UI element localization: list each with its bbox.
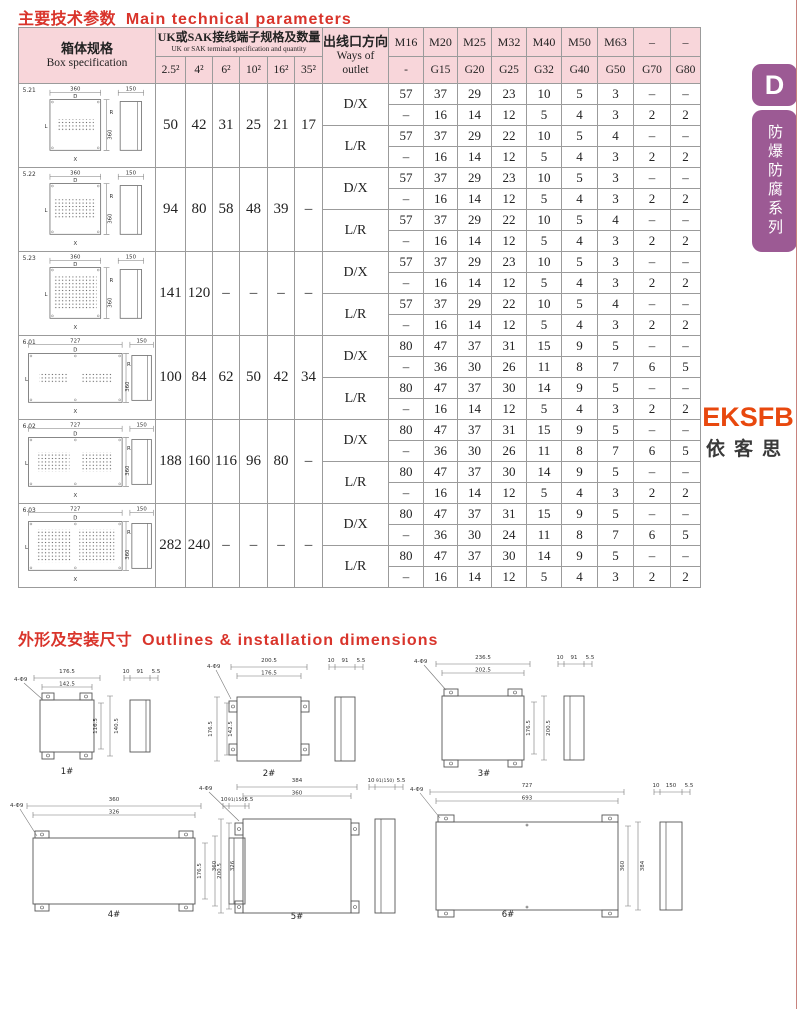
gland-col-header: G20 bbox=[458, 57, 492, 84]
outline-drawing-2: 200.5 176.5 4-Φ9 176.5 142.5 10 91 5.5 2… bbox=[205, 655, 370, 780]
terminal-count-cell: – bbox=[268, 252, 295, 336]
value-cell: 2 bbox=[634, 315, 671, 336]
dim-label: 200.5 bbox=[546, 720, 552, 736]
value-cell: 14 bbox=[458, 189, 492, 210]
value-cell: 15 bbox=[527, 336, 562, 357]
value-cell: 16 bbox=[424, 105, 458, 126]
dim-label: 10 bbox=[653, 783, 660, 789]
value-cell: 37 bbox=[424, 126, 458, 147]
value-cell: 7 bbox=[598, 525, 634, 546]
value-cell: 37 bbox=[424, 294, 458, 315]
svg-text:X: X bbox=[73, 325, 77, 330]
value-cell: 9 bbox=[562, 336, 598, 357]
value-cell: 12 bbox=[492, 315, 527, 336]
value-cell: 4 bbox=[562, 105, 598, 126]
value-cell: 5 bbox=[598, 420, 634, 441]
value-cell: 29 bbox=[458, 294, 492, 315]
value-cell: 12 bbox=[492, 105, 527, 126]
dim-label: 142.5 bbox=[59, 682, 75, 688]
value-cell: 80 bbox=[389, 420, 424, 441]
value-cell: 22 bbox=[492, 126, 527, 147]
svg-text:150: 150 bbox=[125, 170, 136, 176]
value-cell: 57 bbox=[389, 84, 424, 105]
value-cell: 9 bbox=[562, 462, 598, 483]
terminal-count-cell: 25 bbox=[240, 84, 268, 168]
value-cell: 2 bbox=[634, 567, 671, 588]
svg-text:5.22: 5.22 bbox=[22, 172, 35, 178]
value-cell: 37 bbox=[458, 462, 492, 483]
value-cell: 9 bbox=[562, 378, 598, 399]
value-cell: 4 bbox=[598, 126, 634, 147]
outlines-title: 外形及安装尺寸Outlines & installation dimension… bbox=[18, 626, 438, 650]
value-cell: 37 bbox=[458, 546, 492, 567]
value-cell: – bbox=[671, 252, 701, 273]
terminal-count-cell: 188 bbox=[156, 420, 186, 504]
value-cell: 5 bbox=[671, 525, 701, 546]
value-cell: 57 bbox=[389, 168, 424, 189]
value-cell: 31 bbox=[492, 336, 527, 357]
value-cell: 29 bbox=[458, 210, 492, 231]
value-cell: 30 bbox=[492, 378, 527, 399]
svg-text:150: 150 bbox=[125, 254, 136, 260]
value-cell: – bbox=[389, 567, 424, 588]
dim-label: 176.5 bbox=[261, 671, 277, 677]
value-cell: 16 bbox=[424, 483, 458, 504]
dim-label: 384 bbox=[292, 778, 303, 784]
value-cell: 5 bbox=[598, 546, 634, 567]
value-cell: 22 bbox=[492, 294, 527, 315]
value-cell: 4 bbox=[562, 147, 598, 168]
value-cell: 3 bbox=[598, 189, 634, 210]
svg-text:150: 150 bbox=[125, 86, 136, 92]
table-row: 5.21360DLR360X150504231252117D/X57372923… bbox=[19, 84, 701, 105]
box-drawing: 6.02727DLR360X150 bbox=[20, 420, 155, 498]
outlet-way-cell: D/X bbox=[323, 336, 389, 378]
value-cell: 29 bbox=[458, 126, 492, 147]
value-cell: 2 bbox=[634, 147, 671, 168]
table-row: 6.03727DLR360X150282240––––D/X8047373115… bbox=[19, 504, 701, 525]
svg-text:360: 360 bbox=[107, 129, 113, 140]
terminal-count-cell: 42 bbox=[268, 336, 295, 420]
value-cell: – bbox=[389, 105, 424, 126]
value-cell: 29 bbox=[458, 84, 492, 105]
value-cell: – bbox=[634, 210, 671, 231]
value-cell: 37 bbox=[458, 336, 492, 357]
value-cell: 37 bbox=[424, 210, 458, 231]
svg-text:360: 360 bbox=[70, 170, 81, 176]
holes-label: 4-Φ9 bbox=[199, 786, 213, 792]
value-cell: 2 bbox=[671, 567, 701, 588]
value-cell: 57 bbox=[389, 210, 424, 231]
value-cell: 9 bbox=[562, 504, 598, 525]
terminal-count-cell: – bbox=[240, 504, 268, 588]
value-cell: 4 bbox=[598, 294, 634, 315]
dim-label: 140.5 bbox=[114, 718, 120, 734]
value-cell: 3 bbox=[598, 399, 634, 420]
terminal-count-cell: 21 bbox=[268, 84, 295, 168]
terminal-count-cell: 48 bbox=[240, 168, 268, 252]
terminal-size-header: 16² bbox=[268, 57, 295, 84]
terminal-count-cell: 141 bbox=[156, 252, 186, 336]
terminal-count-cell: 39 bbox=[268, 168, 295, 252]
value-cell: – bbox=[634, 84, 671, 105]
dim-label: 91(150) bbox=[376, 778, 394, 784]
brand-logo: EKSFB 依客思 bbox=[698, 404, 798, 461]
value-cell: 5 bbox=[562, 252, 598, 273]
value-cell: 3 bbox=[598, 231, 634, 252]
gland-col-header: G80 bbox=[671, 57, 701, 84]
value-cell: 2 bbox=[671, 273, 701, 294]
outlet-way-cell: L/R bbox=[323, 126, 389, 168]
value-cell: 5 bbox=[527, 147, 562, 168]
value-cell: – bbox=[634, 168, 671, 189]
svg-text:X: X bbox=[73, 157, 77, 162]
value-cell: 3 bbox=[598, 84, 634, 105]
svg-text:360: 360 bbox=[70, 254, 81, 260]
value-cell: 24 bbox=[492, 525, 527, 546]
box-drawing: 5.23360DLR360X150 bbox=[20, 252, 155, 330]
value-cell: 14 bbox=[527, 378, 562, 399]
drawing-label: 3# bbox=[478, 769, 491, 779]
terminal-count-cell: 84 bbox=[186, 336, 213, 420]
sidebar-tab-letter: D bbox=[765, 70, 785, 101]
value-cell: 4 bbox=[562, 315, 598, 336]
value-cell: – bbox=[671, 294, 701, 315]
value-cell: 9 bbox=[562, 420, 598, 441]
value-cell: 47 bbox=[424, 336, 458, 357]
value-cell: 12 bbox=[492, 147, 527, 168]
value-cell: 37 bbox=[424, 252, 458, 273]
value-cell: 7 bbox=[598, 441, 634, 462]
holes-label: 4-Φ9 bbox=[207, 664, 221, 670]
box-drawing: 6.03727DLR360X150 bbox=[20, 504, 155, 582]
terminal-spec-en: UK or SAK terminal specification and qua… bbox=[160, 46, 318, 54]
svg-text:L: L bbox=[44, 208, 47, 214]
terminal-count-cell: 80 bbox=[268, 420, 295, 504]
value-cell: – bbox=[671, 84, 701, 105]
value-cell: 30 bbox=[492, 546, 527, 567]
dim-label: 326 bbox=[230, 860, 236, 871]
svg-text:727: 727 bbox=[70, 506, 80, 512]
dim-label: 10 bbox=[328, 658, 335, 664]
value-cell: – bbox=[634, 294, 671, 315]
value-cell: – bbox=[389, 441, 424, 462]
box-figure-cell: 5.21360DLR360X150 bbox=[19, 84, 156, 168]
terminal-count-cell: 50 bbox=[156, 84, 186, 168]
svg-text:5.23: 5.23 bbox=[22, 256, 35, 262]
value-cell: 14 bbox=[458, 273, 492, 294]
gland-col-header: G70 bbox=[634, 57, 671, 84]
value-cell: – bbox=[671, 210, 701, 231]
terminal-count-cell: – bbox=[268, 504, 295, 588]
value-cell: 15 bbox=[527, 504, 562, 525]
value-cell: 23 bbox=[492, 84, 527, 105]
terminal-size-header: 35² bbox=[295, 57, 323, 84]
value-cell: 14 bbox=[458, 567, 492, 588]
svg-text:D: D bbox=[73, 516, 77, 522]
value-cell: 12 bbox=[492, 483, 527, 504]
svg-text:R: R bbox=[127, 446, 131, 452]
holes-label: 4-Φ9 bbox=[14, 677, 28, 683]
svg-text:L: L bbox=[25, 377, 28, 383]
value-cell: 3 bbox=[598, 273, 634, 294]
terminal-count-cell: 50 bbox=[240, 336, 268, 420]
value-cell: – bbox=[671, 462, 701, 483]
value-cell: 12 bbox=[492, 567, 527, 588]
terminal-size-header: 2.5² bbox=[156, 57, 186, 84]
sidebar-tab-d: D bbox=[752, 64, 797, 106]
drawing-label: 6# bbox=[502, 910, 515, 920]
terminal-count-cell: 282 bbox=[156, 504, 186, 588]
terminal-size-header: 6² bbox=[213, 57, 240, 84]
terminal-count-cell: 42 bbox=[186, 84, 213, 168]
terminal-count-cell: – bbox=[295, 504, 323, 588]
svg-text:5.21: 5.21 bbox=[22, 88, 35, 94]
value-cell: 5 bbox=[527, 231, 562, 252]
value-cell: 16 bbox=[424, 147, 458, 168]
svg-text:360: 360 bbox=[124, 381, 130, 392]
box-drawing: 6.01727DLR360X150 bbox=[20, 336, 155, 414]
value-cell: 37 bbox=[458, 504, 492, 525]
box-spec-en: Box specification bbox=[19, 57, 155, 70]
dim-label: 10 bbox=[368, 778, 375, 784]
box-spec-header: 箱体规格 Box specification bbox=[19, 28, 156, 84]
value-cell: 5 bbox=[671, 441, 701, 462]
holes-label: 4-Φ9 bbox=[414, 659, 428, 665]
gland-col-header: G32 bbox=[527, 57, 562, 84]
terminal-count-cell: 120 bbox=[186, 252, 213, 336]
value-cell: 11 bbox=[527, 441, 562, 462]
svg-text:X: X bbox=[73, 577, 77, 582]
value-cell: 5 bbox=[527, 315, 562, 336]
svg-text:R: R bbox=[109, 110, 113, 116]
value-cell: 2 bbox=[671, 147, 701, 168]
holes-label: 4-Φ9 bbox=[10, 803, 24, 809]
outlines-title-en: Outlines & installation dimensions bbox=[142, 632, 438, 649]
outlet-way-cell: D/X bbox=[323, 84, 389, 126]
catalog-page: 主要技术参数Main technical parameters 箱体规格 Box… bbox=[0, 0, 800, 1009]
terminal-size-header: 4² bbox=[186, 57, 213, 84]
terminal-count-cell: 240 bbox=[186, 504, 213, 588]
dim-label: 5.5 bbox=[357, 658, 366, 664]
dim-label: 236.5 bbox=[475, 655, 491, 661]
thread-col-header: – bbox=[671, 28, 701, 57]
value-cell: 5 bbox=[598, 378, 634, 399]
svg-text:360: 360 bbox=[107, 297, 113, 308]
outlines-title-zh: 外形及安装尺寸 bbox=[18, 632, 132, 649]
value-cell: 4 bbox=[562, 231, 598, 252]
table-row: 5.22360DLR360X1509480584839–D/X573729231… bbox=[19, 168, 701, 189]
dim-label: 5.5 bbox=[685, 783, 694, 789]
value-cell: 36 bbox=[424, 525, 458, 546]
terminal-count-cell: – bbox=[295, 420, 323, 504]
outlet-way-cell: D/X bbox=[323, 504, 389, 546]
svg-text:R: R bbox=[127, 530, 131, 536]
value-cell: 14 bbox=[527, 546, 562, 567]
value-cell: 36 bbox=[424, 357, 458, 378]
gland-col-header: - bbox=[389, 57, 424, 84]
main-parameters-title-en: Main technical parameters bbox=[126, 11, 352, 28]
terminal-count-cell: – bbox=[295, 252, 323, 336]
svg-text:150: 150 bbox=[136, 506, 147, 512]
dim-label: 91 bbox=[342, 658, 349, 664]
value-cell: 16 bbox=[424, 273, 458, 294]
svg-text:727: 727 bbox=[70, 422, 80, 428]
value-cell: 5 bbox=[562, 210, 598, 231]
value-cell: 29 bbox=[458, 252, 492, 273]
value-cell: 10 bbox=[527, 294, 562, 315]
thread-col-header: M63 bbox=[598, 28, 634, 57]
value-cell: – bbox=[389, 189, 424, 210]
value-cell: 3 bbox=[598, 105, 634, 126]
value-cell: 23 bbox=[492, 168, 527, 189]
value-cell: 57 bbox=[389, 252, 424, 273]
svg-text:X: X bbox=[73, 409, 77, 414]
value-cell: 2 bbox=[634, 189, 671, 210]
terminal-count-cell: – bbox=[295, 168, 323, 252]
value-cell: – bbox=[634, 252, 671, 273]
value-cell: 29 bbox=[458, 168, 492, 189]
outlet-way-cell: L/R bbox=[323, 546, 389, 588]
value-cell: 5 bbox=[562, 126, 598, 147]
value-cell: 16 bbox=[424, 189, 458, 210]
gland-col-header: G15 bbox=[424, 57, 458, 84]
value-cell: – bbox=[671, 126, 701, 147]
value-cell: 80 bbox=[389, 336, 424, 357]
value-cell: 80 bbox=[389, 462, 424, 483]
value-cell: – bbox=[634, 504, 671, 525]
dim-label: 150 bbox=[666, 783, 677, 789]
sidebar-series-tab: 防爆防腐系列 bbox=[752, 110, 797, 252]
svg-text:R: R bbox=[109, 278, 113, 284]
dim-label: 10 bbox=[557, 655, 564, 661]
main-parameters-title: 主要技术参数Main technical parameters bbox=[18, 5, 352, 29]
value-cell: 47 bbox=[424, 546, 458, 567]
thread-col-header: M20 bbox=[424, 28, 458, 57]
svg-text:D: D bbox=[73, 348, 77, 354]
value-cell: 16 bbox=[424, 567, 458, 588]
svg-text:D: D bbox=[73, 432, 77, 438]
value-cell: 30 bbox=[458, 357, 492, 378]
svg-text:360: 360 bbox=[70, 86, 81, 92]
value-cell: 11 bbox=[527, 525, 562, 546]
value-cell: 30 bbox=[458, 441, 492, 462]
dim-label: 5.5 bbox=[397, 778, 406, 784]
value-cell: 14 bbox=[458, 147, 492, 168]
value-cell: 12 bbox=[492, 231, 527, 252]
value-cell: 3 bbox=[598, 567, 634, 588]
value-cell: 10 bbox=[527, 84, 562, 105]
outlet-way-cell: L/R bbox=[323, 462, 389, 504]
value-cell: 4 bbox=[562, 189, 598, 210]
dim-label: 142.5 bbox=[228, 721, 234, 737]
value-cell: 3 bbox=[598, 147, 634, 168]
value-cell: – bbox=[389, 273, 424, 294]
svg-text:D: D bbox=[73, 178, 77, 184]
box-figure-cell: 5.22360DLR360X150 bbox=[19, 168, 156, 252]
value-cell: 80 bbox=[389, 378, 424, 399]
value-cell: 2 bbox=[671, 231, 701, 252]
value-cell: – bbox=[634, 546, 671, 567]
outlet-way-cell: D/X bbox=[323, 168, 389, 210]
value-cell: 2 bbox=[634, 483, 671, 504]
terminal-count-cell: 160 bbox=[186, 420, 213, 504]
value-cell: 4 bbox=[562, 399, 598, 420]
value-cell: 5 bbox=[527, 273, 562, 294]
dim-label: 360 bbox=[109, 797, 120, 803]
value-cell: 80 bbox=[389, 504, 424, 525]
value-cell: 5 bbox=[527, 567, 562, 588]
dim-label: 176.5 bbox=[526, 720, 532, 736]
value-cell: 2 bbox=[671, 189, 701, 210]
value-cell: 10 bbox=[527, 126, 562, 147]
value-cell: 37 bbox=[424, 84, 458, 105]
outlet-way-cell: D/X bbox=[323, 420, 389, 462]
table-row: 6.02727DLR360X1501881601169680–D/X804737… bbox=[19, 420, 701, 441]
value-cell: – bbox=[671, 378, 701, 399]
value-cell: 5 bbox=[598, 462, 634, 483]
thread-col-header: M32 bbox=[492, 28, 527, 57]
value-cell: 6 bbox=[634, 357, 671, 378]
value-cell: – bbox=[389, 525, 424, 546]
terminal-count-cell: 96 bbox=[240, 420, 268, 504]
value-cell: – bbox=[634, 378, 671, 399]
value-cell: 8 bbox=[562, 525, 598, 546]
terminal-count-cell: – bbox=[213, 504, 240, 588]
dim-label: 10 bbox=[123, 669, 130, 675]
value-cell: 12 bbox=[492, 189, 527, 210]
holes-label: 4-Φ9 bbox=[410, 787, 424, 793]
value-cell: 37 bbox=[458, 378, 492, 399]
value-cell: 26 bbox=[492, 441, 527, 462]
svg-text:L: L bbox=[25, 461, 28, 467]
box-figure-cell: 6.01727DLR360X150 bbox=[19, 336, 156, 420]
gland-col-header: G50 bbox=[598, 57, 634, 84]
parameters-table-body: 5.21360DLR360X150504231252117D/X57372923… bbox=[19, 84, 701, 588]
outlet-way-cell: D/X bbox=[323, 252, 389, 294]
dim-label: 384 bbox=[640, 860, 646, 871]
value-cell: – bbox=[671, 420, 701, 441]
gland-col-header: G25 bbox=[492, 57, 527, 84]
box-figure-cell: 6.03727DLR360X150 bbox=[19, 504, 156, 588]
value-cell: 12 bbox=[492, 273, 527, 294]
value-cell: 5 bbox=[562, 294, 598, 315]
box-drawing: 5.22360DLR360X150 bbox=[20, 168, 155, 246]
terminal-count-cell: 31 bbox=[213, 84, 240, 168]
thread-col-header: M40 bbox=[527, 28, 562, 57]
terminal-spec-header: UK或SAK接线端子规格及数量 UK or SAK terminal speci… bbox=[156, 28, 323, 57]
dim-label: 5.5 bbox=[586, 655, 595, 661]
value-cell: 2 bbox=[671, 483, 701, 504]
value-cell: 2 bbox=[671, 105, 701, 126]
terminal-count-cell: 116 bbox=[213, 420, 240, 504]
svg-text:X: X bbox=[73, 493, 77, 498]
terminal-count-cell: 80 bbox=[186, 168, 213, 252]
dim-label: 360 bbox=[212, 860, 218, 871]
outline-drawing-3: 236.5 202.5 4-Φ9 176.5 200.5 10 91 5.5 3… bbox=[412, 652, 607, 780]
dim-label: 326 bbox=[109, 810, 120, 816]
value-cell: 31 bbox=[492, 420, 527, 441]
value-cell: 16 bbox=[424, 231, 458, 252]
outlet-way-cell: L/R bbox=[323, 378, 389, 420]
thread-col-header: – bbox=[634, 28, 671, 57]
value-cell: – bbox=[634, 126, 671, 147]
value-cell: 7 bbox=[598, 357, 634, 378]
value-cell: 37 bbox=[458, 420, 492, 441]
value-cell: 4 bbox=[562, 567, 598, 588]
ways-zh: 出线口方向 bbox=[323, 34, 388, 50]
main-parameters-title-zh: 主要技术参数 bbox=[18, 11, 116, 28]
